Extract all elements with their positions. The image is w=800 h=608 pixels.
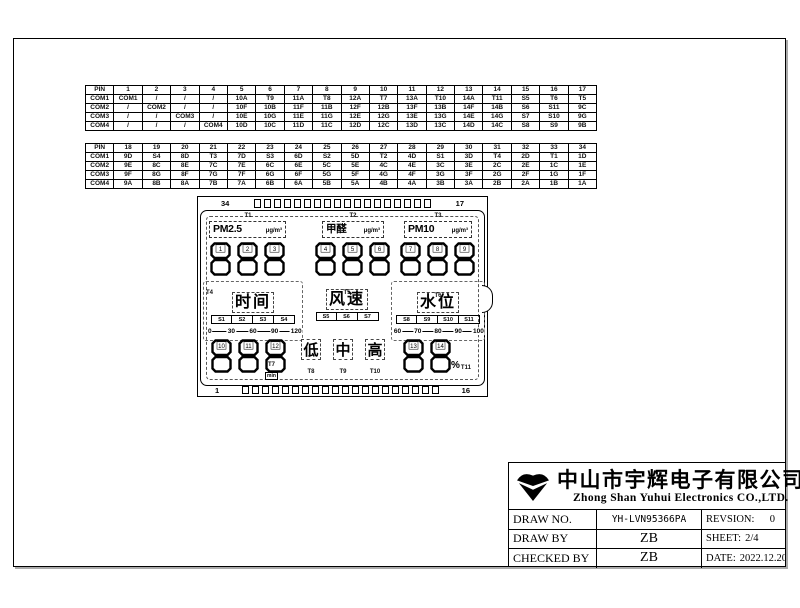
- pin-square: [284, 199, 291, 208]
- pin-square: [372, 386, 379, 394]
- mid-level-item: 中 T9: [333, 339, 353, 378]
- pin-cell: 8F: [171, 171, 199, 180]
- pin-cell: COM1: [86, 153, 114, 162]
- svg-text:14: 14: [437, 344, 444, 350]
- pin-cell: 4C: [369, 162, 397, 171]
- pin-cell: COM1: [114, 95, 142, 104]
- pin-cell: 7B: [199, 180, 227, 189]
- pin-cell: COM1: [86, 95, 114, 104]
- svg-text:13: 13: [410, 344, 417, 350]
- svg-text:11: 11: [245, 344, 252, 350]
- seven-seg-digit-11: 11: [238, 339, 259, 379]
- scale-number: 100: [472, 328, 485, 335]
- pin-cell: 11D: [284, 122, 312, 131]
- pin-cell: T8: [313, 95, 341, 104]
- pin-cell: 8B: [142, 180, 170, 189]
- pin-cell: T1: [540, 153, 568, 162]
- pin-cell: /: [142, 95, 170, 104]
- pin-header-cell: 19: [142, 144, 170, 153]
- tag-t10: T10: [370, 369, 380, 375]
- pin-cell: T4: [483, 153, 511, 162]
- pin-cell: /: [114, 122, 142, 131]
- panel-hcho-unit: μg/m³: [364, 228, 380, 234]
- title-block: 中山市宇辉电子有限公司 Zhong Shan Yuhui Electronics…: [508, 462, 786, 567]
- pin-cell: 8E: [171, 162, 199, 171]
- pin-header-cell: 20: [171, 144, 199, 153]
- tag-t9: T9: [339, 369, 346, 375]
- bar-segment-s7: S7: [358, 312, 379, 321]
- pin-cell: T6: [540, 95, 568, 104]
- pin-cell: 1C: [540, 162, 568, 171]
- pin-cell: 9F: [114, 171, 142, 180]
- pin-cell: 13A: [398, 95, 426, 104]
- pin-cell: 10B: [256, 104, 284, 113]
- digit-group-1: 123: [210, 242, 285, 282]
- pin-cell: S6: [511, 104, 539, 113]
- waterlevel-scale: 60708090100: [394, 326, 482, 338]
- seven-seg-digit-13: 13: [403, 339, 424, 379]
- pin-header-cell: 25: [313, 144, 341, 153]
- low-level-char: 低: [303, 339, 318, 360]
- digit-group-3: 789: [400, 242, 475, 282]
- pin-cell: 9B: [568, 122, 596, 131]
- time-label: 时间: [235, 294, 271, 311]
- pin-cell: 3E: [455, 162, 483, 171]
- pin-cell: T3: [199, 153, 227, 162]
- pin-square: [432, 386, 439, 394]
- pin-square: [274, 199, 281, 208]
- pin-header-cell: 7: [284, 86, 312, 95]
- pin-cell: T9: [256, 95, 284, 104]
- bar-segment-s1: S1: [211, 315, 232, 324]
- pin-cell: 2A: [511, 180, 539, 189]
- pin-table: PIN1234567891011121314151617COM1COM1///1…: [85, 85, 597, 131]
- pin-square: [242, 386, 249, 394]
- draw-by-label: DRAW BY: [509, 530, 596, 549]
- top-pin-strip: 34 17: [199, 197, 486, 210]
- pin-header-cell: 30: [455, 144, 483, 153]
- time-seg-bar: S1S2S3S4: [206, 315, 300, 324]
- pin-cell: 12B: [369, 104, 397, 113]
- pin-header-cell: 17: [568, 86, 596, 95]
- pin-square: [334, 199, 341, 208]
- pin-cell: COM4: [199, 122, 227, 131]
- bar-segment-s8: S8: [396, 315, 417, 324]
- pin-cell: /: [114, 113, 142, 122]
- pin-cell: S11: [540, 104, 568, 113]
- pin-cell: 12F: [341, 104, 369, 113]
- company-name-cn: 中山市宇辉电子有限公司: [557, 468, 800, 492]
- pin-cell: S9: [540, 122, 568, 131]
- pin-cell: 6D: [284, 153, 312, 162]
- pin-cell: 3B: [426, 180, 454, 189]
- pin-square: [344, 199, 351, 208]
- pin-header-cell: 34: [568, 144, 596, 153]
- pin-header-cell: 16: [540, 86, 568, 95]
- seven-seg-digit-1: 1: [210, 242, 231, 282]
- pin-header-cell: 31: [483, 144, 511, 153]
- pin-cell: 5B: [313, 180, 341, 189]
- fan-level-icons: 低 T8 中 T9 高 T10: [301, 339, 385, 378]
- time-label-box: 时间: [232, 292, 274, 313]
- pin-cell: 13G: [426, 113, 454, 122]
- pin-cell: 14D: [455, 122, 483, 131]
- seven-seg-digit-6: 6: [369, 242, 390, 282]
- top-pin-squares: [229, 199, 455, 208]
- pin-cell: 14F: [455, 104, 483, 113]
- pin-cell: 9C: [568, 104, 596, 113]
- pin-square: [294, 199, 301, 208]
- pin-cell: COM3: [86, 171, 114, 180]
- pin-cell: 12G: [369, 113, 397, 122]
- bar-segment-s5: S5: [316, 312, 337, 321]
- pin-header-cell: 27: [369, 144, 397, 153]
- pin-cell: 9D: [114, 153, 142, 162]
- pin-cell: T11: [483, 95, 511, 104]
- tag-t6: T6: [434, 293, 441, 299]
- seven-seg-digit-4: 4: [315, 242, 336, 282]
- scale-number: 90: [270, 328, 279, 335]
- pin-cell: 4A: [398, 180, 426, 189]
- pin-cell: 8D: [171, 153, 199, 162]
- pin-cell: 12A: [341, 95, 369, 104]
- bar-segment-s9: S9: [417, 315, 438, 324]
- pin-cell: 13C: [426, 122, 454, 131]
- seven-seg-digit-8: 8: [427, 242, 448, 282]
- pin-cell: 2D: [511, 153, 539, 162]
- pin-cell: 8G: [142, 171, 170, 180]
- pin-square: [412, 386, 419, 394]
- pin-cell: S10: [540, 113, 568, 122]
- pin-cell: 1F: [568, 171, 596, 180]
- pin-header-cell: 23: [256, 144, 284, 153]
- bar-segment-s3: S3: [253, 315, 274, 324]
- svg-text:10: 10: [218, 344, 225, 350]
- pin-header-cell: 18: [114, 144, 142, 153]
- title-block-row-2: DRAW BY ZB SHEET: 2/4: [509, 529, 785, 549]
- pin-header-cell: 22: [227, 144, 255, 153]
- pin-header-cell: 32: [511, 144, 539, 153]
- pin-cell: 10C: [256, 122, 284, 131]
- pin-cell: 2G: [483, 171, 511, 180]
- pin-cell: 3A: [455, 180, 483, 189]
- pin-cell: 1A: [568, 180, 596, 189]
- pin-cell: 3F: [455, 171, 483, 180]
- pin-cell: 10G: [256, 113, 284, 122]
- tag-t2: T2: [349, 213, 356, 219]
- panel-pm25-unit: μg/m³: [266, 228, 282, 234]
- percent-icon: %: [451, 361, 460, 371]
- seven-seg-digit-7: 7: [400, 242, 421, 282]
- pin-cell: COM3: [171, 113, 199, 122]
- pin-cell: /: [171, 104, 199, 113]
- pin-cell: 3D: [455, 153, 483, 162]
- pin-cell: 5D: [341, 153, 369, 162]
- pin-cell: COM2: [142, 104, 170, 113]
- scale-number: 60: [248, 328, 257, 335]
- pin-cell: T5: [568, 95, 596, 104]
- pin-cell: 7F: [227, 171, 255, 180]
- pin-cell: 11E: [284, 113, 312, 122]
- checked-by-label: CHECKED BY: [509, 549, 596, 568]
- pin-cell: T10: [426, 95, 454, 104]
- scale-number: 90: [454, 328, 463, 335]
- bar-segment-s10: S10: [438, 315, 459, 324]
- pin-header-cell: 15: [511, 86, 539, 95]
- pin-cell: /: [171, 95, 199, 104]
- pin-square: [402, 386, 409, 394]
- pin-cell: S5: [511, 95, 539, 104]
- pin-square: [354, 199, 361, 208]
- scale-number: 60: [393, 328, 402, 335]
- pin-cell: COM2: [86, 162, 114, 171]
- pin-header-cell: 29: [426, 144, 454, 153]
- seven-seg-digit-5: 5: [342, 242, 363, 282]
- pin-square: [264, 199, 271, 208]
- pin-cell: 7E: [227, 162, 255, 171]
- pin-cell: /: [199, 113, 227, 122]
- bar-segment-s2: S2: [232, 315, 253, 324]
- pin-cell: 14A: [455, 95, 483, 104]
- pin-square: [292, 386, 299, 394]
- pin-header-cell: 5: [227, 86, 255, 95]
- pin-header-cell: 12: [426, 86, 454, 95]
- pin-cell: 12E: [341, 113, 369, 122]
- pin-cell: 14B: [483, 104, 511, 113]
- pin-header-cell: 21: [199, 144, 227, 153]
- seven-seg-digit-2: 2: [237, 242, 258, 282]
- scale-number: 70: [413, 328, 422, 335]
- pin-cell: 5C: [313, 162, 341, 171]
- pin-cell: 11C: [313, 122, 341, 131]
- pin-square: [374, 199, 381, 208]
- pin-square: [272, 386, 279, 394]
- company-name-en: Zhong Shan Yuhui Electronics CO.,LTD.: [557, 492, 800, 504]
- mid-level-char: 中: [335, 339, 350, 360]
- pin-cell: 10F: [227, 104, 255, 113]
- pin-cell: 6G: [256, 171, 284, 180]
- pin-cell: 14G: [483, 113, 511, 122]
- pin-cell: 8C: [142, 162, 170, 171]
- pin-cell: 1E: [568, 162, 596, 171]
- pin-square: [322, 386, 329, 394]
- pin-cell: 12D: [341, 122, 369, 131]
- seven-seg-digit-14: 14: [430, 339, 451, 379]
- pin-cell: 6F: [284, 171, 312, 180]
- pin-cell: T7: [369, 95, 397, 104]
- pin-cell: S1: [426, 153, 454, 162]
- pin-cell: COM4: [86, 180, 114, 189]
- pin-cell: 1G: [540, 171, 568, 180]
- pin-square: [332, 386, 339, 394]
- pin-cell: 5E: [341, 162, 369, 171]
- pin-cell: 7A: [227, 180, 255, 189]
- pin-square: [312, 386, 319, 394]
- pin-cell: 10D: [227, 122, 255, 131]
- pin-square: [324, 199, 331, 208]
- pin-header-cell: 11: [398, 86, 426, 95]
- pin-cell: /: [171, 122, 199, 131]
- pin-cell: 7D: [227, 153, 255, 162]
- pin-cell: /: [142, 122, 170, 131]
- pin-cell: 6E: [284, 162, 312, 171]
- tag-t8: T8: [307, 369, 314, 375]
- windspeed-seg-bar: S5S6S7: [311, 312, 383, 321]
- seven-seg-digit-3: 3: [264, 242, 285, 282]
- pin-square: [392, 386, 399, 394]
- windspeed-bar-group: T5 风速 S5S6S7: [311, 281, 383, 321]
- pin-cell: 1D: [568, 153, 596, 162]
- pin-cell: 6A: [284, 180, 312, 189]
- pin-cell: 2B: [483, 180, 511, 189]
- bottom-pin-strip: 1 16: [199, 384, 486, 396]
- pin-header-cell: 8: [313, 86, 341, 95]
- panel-hcho: 甲醛 μg/m³: [322, 221, 384, 238]
- bar-segment-s4: S4: [274, 315, 295, 324]
- digit-group-5: 1314: [403, 339, 451, 379]
- pin-header-cell: 9: [341, 86, 369, 95]
- pin-cell: 4D: [398, 153, 426, 162]
- pin-cell: 5F: [341, 171, 369, 180]
- high-level-icon: 高: [365, 339, 385, 360]
- scale-number: 120: [290, 328, 303, 335]
- pin-cell: 14E: [455, 113, 483, 122]
- pin-square: [254, 199, 261, 208]
- sheet-value: 2/4: [745, 533, 758, 544]
- draw-no-label: DRAW NO.: [509, 510, 596, 529]
- tag-t4: T4: [206, 290, 213, 296]
- bottom-pin-squares: [219, 386, 461, 394]
- pin-header-cell: 1: [114, 86, 142, 95]
- tag-t1: T1: [244, 213, 251, 219]
- pin-cell: /: [199, 95, 227, 104]
- top-right-pin-number: 17: [456, 199, 464, 208]
- waterlevel-seg-bar: S8S9S10S11: [394, 315, 482, 324]
- pin-cell: /: [199, 104, 227, 113]
- pin-square: [362, 386, 369, 394]
- pin-square: [314, 199, 321, 208]
- pin-header-cell: 6: [256, 86, 284, 95]
- pin-cell: 2C: [483, 162, 511, 171]
- pin-square: [422, 386, 429, 394]
- pin-square: [262, 386, 269, 394]
- company-logo-icon: [513, 470, 553, 502]
- pin-header-cell: 24: [284, 144, 312, 153]
- tag-t7: T7: [268, 362, 275, 368]
- panel-pm25: PM2.5 μg/m³: [209, 221, 286, 238]
- pin-header-cell: 14: [483, 86, 511, 95]
- draw-by-value: ZB: [596, 530, 701, 549]
- panel-hcho-name: 甲醛: [326, 224, 346, 235]
- panel-pm10-name: PM10: [408, 224, 434, 235]
- pin-cell: 11A: [284, 95, 312, 104]
- pin-square: [352, 386, 359, 394]
- scale-number: 30: [227, 328, 236, 335]
- pin-cell: 9A: [114, 180, 142, 189]
- pin-cell: 13F: [398, 104, 426, 113]
- tag-t11: T11: [461, 365, 471, 371]
- top-left-pin-number: 34: [221, 199, 229, 208]
- waterlevel-bar-group: T6 水位 S8S9S10S11 60708090100: [391, 281, 485, 341]
- pin-cell: 10A: [227, 95, 255, 104]
- pin-cell: /: [142, 113, 170, 122]
- seven-seg-digit-10: 10: [211, 339, 232, 379]
- bar-segment-s11: S11: [459, 315, 480, 324]
- time-scale: 0306090120: [206, 326, 300, 338]
- pin-square: [304, 199, 311, 208]
- pin-cell: 2F: [511, 171, 539, 180]
- title-block-row-1: DRAW NO. YH-LVN95366PA REVSION: 0: [509, 509, 785, 529]
- pin-header-cell: 26: [341, 144, 369, 153]
- min-icon: min: [265, 372, 278, 380]
- pin-cell: 7G: [199, 171, 227, 180]
- draw-no-value: YH-LVN95366PA: [596, 510, 701, 529]
- pin-cell: 4F: [398, 171, 426, 180]
- lcd-module-drawing: 34 17 T1 T2 T3 PM2.5 μg/m³ 甲醛 μg/m³ PM10…: [197, 196, 488, 397]
- pin-cell: 3C: [426, 162, 454, 171]
- digit-group-2: 456: [315, 242, 390, 282]
- pin-table-2: PIN1819202122232425262728293031323334COM…: [85, 143, 597, 189]
- panel-pm10: PM10 μg/m³: [404, 221, 472, 238]
- scale-number: 80: [433, 328, 442, 335]
- pin-cell: COM2: [86, 104, 114, 113]
- pin-header-cell: 33: [540, 144, 568, 153]
- pin-cell: S7: [511, 113, 539, 122]
- bottom-right-pin-number: 16: [462, 386, 470, 395]
- pin-square: [364, 199, 371, 208]
- pin-square: [252, 386, 259, 394]
- panel-pm10-unit: μg/m³: [452, 228, 468, 234]
- pin-cell: T2: [369, 153, 397, 162]
- mid-level-icon: 中: [333, 339, 353, 360]
- pin-header-cell: 10: [369, 86, 397, 95]
- pin-cell: 2E: [511, 162, 539, 171]
- tag-t5: T5: [343, 290, 350, 296]
- pin-cell: 1B: [540, 180, 568, 189]
- pin-cell: 6C: [256, 162, 284, 171]
- panel-pm25-name: PM2.5: [213, 224, 242, 235]
- pin-cell: COM4: [86, 122, 114, 131]
- scale-number: 0: [207, 328, 213, 335]
- pin-cell: 5A: [341, 180, 369, 189]
- pin-square: [342, 386, 349, 394]
- tag-t3: T3: [434, 213, 441, 219]
- pin-square: [384, 199, 391, 208]
- pin-square: [394, 199, 401, 208]
- drawing-sheet: PIN1234567891011121314151617COM1COM1///1…: [0, 0, 800, 608]
- pin-square: [404, 199, 411, 208]
- pin-cell: 7C: [199, 162, 227, 171]
- pin-square: [424, 199, 431, 208]
- pin-cell: 4B: [369, 180, 397, 189]
- date-value: 2022.12.20: [740, 553, 785, 564]
- pin-cell: 11B: [313, 104, 341, 113]
- pin-cell: 11F: [284, 104, 312, 113]
- pin-cell: S8: [511, 122, 539, 131]
- high-level-item: 高 T10: [365, 339, 385, 378]
- pin-cell: 9E: [114, 162, 142, 171]
- svg-text:12: 12: [272, 344, 279, 350]
- pin-cell: 9G: [568, 113, 596, 122]
- pin-square: [414, 199, 421, 208]
- revision-value: 0: [770, 514, 775, 525]
- title-block-row-3: CHECKED BY ZB DATE: 2022.12.20: [509, 548, 785, 568]
- time-bar-group: T4 时间 S1S2S3S4 0306090120: [203, 281, 303, 341]
- pin-header-cell: PIN: [86, 144, 114, 153]
- high-level-char: 高: [367, 339, 382, 360]
- pin-cell: 4G: [369, 171, 397, 180]
- checked-by-value: ZB: [596, 549, 701, 568]
